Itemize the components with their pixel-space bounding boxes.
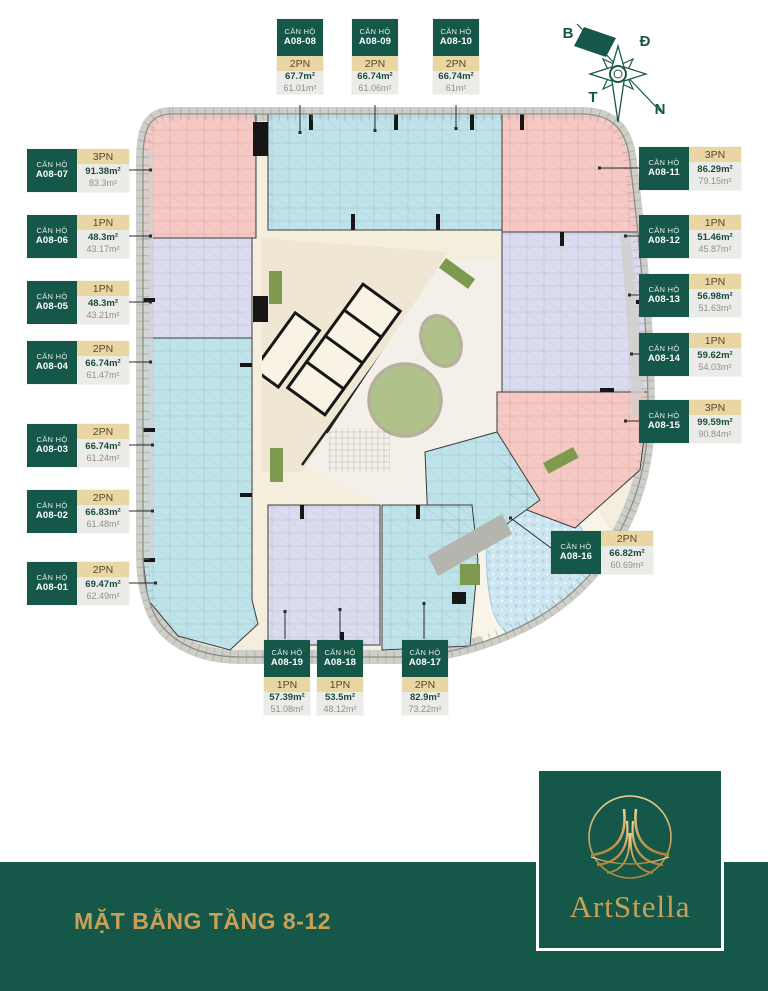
unit-gross-area: 66.74m² [77, 359, 129, 370]
unit-net-area: 61m² [433, 83, 479, 93]
unit-net-area: 51.08m² [264, 704, 310, 714]
unit-bedrooms: 2PN [77, 341, 129, 356]
unit-gross-area: 82.9m² [402, 693, 448, 704]
unit-id-badge: CĂN HỘA08-10 [433, 19, 479, 56]
unit-net-area: 61.47m² [77, 370, 129, 380]
unit-type-label: CĂN HỘ [561, 542, 592, 551]
unit-bedrooms: 2PN [277, 56, 323, 71]
unit-card-a08-05: CĂN HỘA08-051PN48.3m²43.21m² [27, 281, 129, 324]
unit-id-badge: CĂN HỘA08-04 [27, 341, 77, 384]
compass-east-label: Đ [640, 33, 651, 50]
unit-bedrooms: 2PN [77, 490, 129, 505]
unit-card-a08-17: CĂN HỘA08-172PN82.9m²73.22m² [402, 640, 448, 715]
unit-card-a08-15: CĂN HỘA08-153PN99.59m²90.84m² [639, 400, 741, 443]
lawn-circle [369, 364, 441, 436]
unit-id: A08-05 [36, 301, 68, 313]
unit-net-area: 73.22m² [402, 704, 448, 714]
unit-id-badge: CĂN HỘA08-02 [27, 490, 77, 533]
unit-id-badge: CĂN HỘA08-05 [27, 281, 77, 324]
unit-id: A08-07 [36, 169, 68, 181]
unit-bedrooms: 1PN [77, 281, 129, 296]
unit-bedrooms: 3PN [77, 149, 129, 164]
unit-net-area: 79.15m² [689, 176, 741, 186]
unit-net-area: 61.24m² [77, 453, 129, 463]
unit-id: A08-08 [284, 36, 316, 48]
unit-gross-area: 53.5m² [317, 693, 363, 704]
unit-id: A08-12 [648, 235, 680, 247]
unit-gross-area: 56.98m² [689, 292, 741, 303]
unit-gross-area: 66.83m² [77, 508, 129, 519]
unit-type-label: CĂN HỘ [325, 648, 356, 657]
unit-id-badge: CĂN HỘA08-09 [352, 19, 398, 56]
unit-gross-area: 51.46m² [689, 233, 741, 244]
unit-bedrooms: 1PN [689, 333, 741, 348]
unit-gross-area: 59.62m² [689, 351, 741, 362]
unit-gross-area: 66.82m² [601, 549, 653, 560]
unit-type-label: CĂN HỘ [649, 285, 680, 294]
unit-id-badge: CĂN HỘA08-03 [27, 424, 77, 467]
unit-net-area: 54.03m² [689, 362, 741, 372]
unit-id: A08-02 [36, 510, 68, 522]
brand-logo-box: ArtStella [536, 768, 724, 951]
unit-bedrooms: 3PN [689, 400, 741, 415]
paving-grid [328, 428, 390, 472]
compass-west-label: T [588, 89, 597, 106]
unit-id-badge: CĂN HỘA08-11 [639, 147, 689, 190]
unit-id: A08-19 [271, 657, 303, 669]
unit-net-area: 83.3m² [77, 178, 129, 188]
unit-id: A08-11 [648, 167, 680, 179]
unit-gross-area: 66.74m² [433, 72, 479, 83]
unit-card-a08-09: CĂN HỘA08-092PN66.74m²61.06m² [352, 19, 398, 94]
unit-bedrooms: 2PN [352, 56, 398, 71]
unit-id-badge: CĂN HỘA08-16 [551, 531, 601, 574]
unit-gross-area: 67.7m² [277, 72, 323, 83]
unit-id-badge: CĂN HỘA08-18 [317, 640, 363, 677]
unit-id: A08-10 [440, 36, 472, 48]
unit-card-a08-11: CĂN HỘA08-113PN86.29m²79.15m² [639, 147, 741, 190]
unit-id-badge: CĂN HỘA08-07 [27, 149, 77, 192]
unit-net-area: 48.12m² [317, 704, 363, 714]
unit-net-area: 61.06m² [352, 83, 398, 93]
unit-id-badge: CĂN HỘA08-01 [27, 562, 77, 605]
unit-type-label: CĂN HỘ [649, 411, 680, 420]
unit-id-badge: CĂN HỘA08-08 [277, 19, 323, 56]
unit-type-label: CĂN HỘ [360, 27, 391, 36]
unit-id: A08-18 [324, 657, 356, 669]
unit-card-a08-16: CĂN HỘA08-162PN66.82m²60.69m² [551, 531, 653, 574]
unit-bedrooms: 1PN [317, 677, 363, 692]
unit-bedrooms: 2PN [601, 531, 653, 546]
unit-id-badge: CĂN HỘA08-15 [639, 400, 689, 443]
unit-id-badge: CĂN HỘA08-06 [27, 215, 77, 258]
unit-id: A08-17 [409, 657, 441, 669]
unit-type-label: CĂN HỘ [649, 158, 680, 167]
unit-bedrooms: 1PN [77, 215, 129, 230]
unit-id: A08-13 [648, 294, 680, 306]
unit-gross-area: 57.39m² [264, 693, 310, 704]
unit-bedrooms: 2PN [77, 424, 129, 439]
unit-type-label: CĂN HỘ [285, 27, 316, 36]
unit-bedrooms: 3PN [689, 147, 741, 162]
unit-net-area: 43.17m² [77, 244, 129, 254]
unit-type-label: CĂN HỘ [37, 501, 68, 510]
unit-card-a08-02: CĂN HỘA08-022PN66.83m²61.48m² [27, 490, 129, 533]
unit-gross-area: 69.47m² [77, 580, 129, 591]
unit-id-badge: CĂN HỘA08-14 [639, 333, 689, 376]
compass-south-label: N [655, 101, 666, 118]
unit-card-a08-10: CĂN HỘA08-102PN66.74m²61m² [433, 19, 479, 94]
unit-id: A08-03 [36, 444, 68, 456]
unit-gross-area: 91.38m² [77, 167, 129, 178]
unit-type-label: CĂN HỘ [37, 226, 68, 235]
unit-gross-area: 66.74m² [77, 442, 129, 453]
unit-net-area: 51.63m² [689, 303, 741, 313]
unit-card-a08-01: CĂN HỘA08-012PN69.47m²62.49m² [27, 562, 129, 605]
unit-bedrooms: 2PN [433, 56, 479, 71]
unit-type-label: CĂN HỘ [441, 27, 472, 36]
unit-id-badge: CĂN HỘA08-12 [639, 215, 689, 258]
unit-net-area: 61.48m² [77, 519, 129, 529]
unit-net-area: 43.21m² [77, 310, 129, 320]
unit-id: A08-15 [648, 420, 680, 432]
unit-card-a08-13: CĂN HỘA08-131PN56.98m²51.63m² [639, 274, 741, 317]
unit-id-badge: CĂN HỘA08-19 [264, 640, 310, 677]
compass-north-label: B [563, 25, 574, 42]
unit-bedrooms: 1PN [689, 215, 741, 230]
unit-card-a08-14: CĂN HỘA08-141PN59.62m²54.03m² [639, 333, 741, 376]
unit-gross-area: 48.3m² [77, 299, 129, 310]
brand-name: ArtStella [570, 889, 691, 925]
unit-type-label: CĂN HỘ [37, 573, 68, 582]
unit-id-badge: CĂN HỘA08-13 [639, 274, 689, 317]
brand-logo-icon [539, 771, 721, 893]
unit-net-area: 61.01m² [277, 83, 323, 93]
unit-card-a08-04: CĂN HỘA08-042PN66.74m²61.47m² [27, 341, 129, 384]
unit-gross-area: 86.29m² [689, 165, 741, 176]
unit-net-area: 90.84m² [689, 429, 741, 439]
unit-id: A08-14 [648, 353, 680, 365]
unit-card-a08-18: CĂN HỘA08-181PN53.5m²48.12m² [317, 640, 363, 715]
unit-gross-area: 66.74m² [352, 72, 398, 83]
unit-bedrooms: 2PN [402, 677, 448, 692]
unit-gross-area: 99.59m² [689, 418, 741, 429]
unit-id: A08-01 [36, 582, 68, 594]
unit-card-a08-07: CĂN HỘA08-073PN91.38m²83.3m² [27, 149, 129, 192]
unit-type-label: CĂN HỘ [272, 648, 303, 657]
unit-type-label: CĂN HỘ [37, 352, 68, 361]
unit-bedrooms: 1PN [264, 677, 310, 692]
unit-type-label: CĂN HỘ [410, 648, 441, 657]
unit-card-a08-06: CĂN HỘA08-061PN48.3m²43.17m² [27, 215, 129, 258]
unit-card-a08-12: CĂN HỘA08-121PN51.46m²45.87m² [639, 215, 741, 258]
unit-id: A08-04 [36, 361, 68, 373]
unit-net-area: 45.87m² [689, 244, 741, 254]
unit-gross-area: 48.3m² [77, 233, 129, 244]
unit-net-area: 62.49m² [77, 591, 129, 601]
unit-net-area: 60.69m² [601, 560, 653, 570]
page-title: MẶT BẰNG TẦNG 8-12 [74, 908, 331, 935]
unit-bedrooms: 1PN [689, 274, 741, 289]
unit-id-badge: CĂN HỘA08-17 [402, 640, 448, 677]
unit-type-label: CĂN HỘ [37, 292, 68, 301]
unit-type-label: CĂN HỘ [649, 226, 680, 235]
unit-type-label: CĂN HỘ [37, 435, 68, 444]
unit-card-a08-19: CĂN HỘA08-191PN57.39m²51.08m² [264, 640, 310, 715]
unit-type-label: CĂN HỘ [37, 160, 68, 169]
unit-id: A08-06 [36, 235, 68, 247]
floor-plan-page: B Đ T N CĂN HỘA08-012PN69.47m²62.49m²CĂN… [0, 0, 768, 991]
unit-type-label: CĂN HỘ [649, 344, 680, 353]
unit-id: A08-16 [560, 551, 592, 563]
unit-id: A08-09 [359, 36, 391, 48]
unit-card-a08-03: CĂN HỘA08-032PN66.74m²61.24m² [27, 424, 129, 467]
unit-card-a08-08: CĂN HỘA08-082PN67.7m²61.01m² [277, 19, 323, 94]
unit-bedrooms: 2PN [77, 562, 129, 577]
